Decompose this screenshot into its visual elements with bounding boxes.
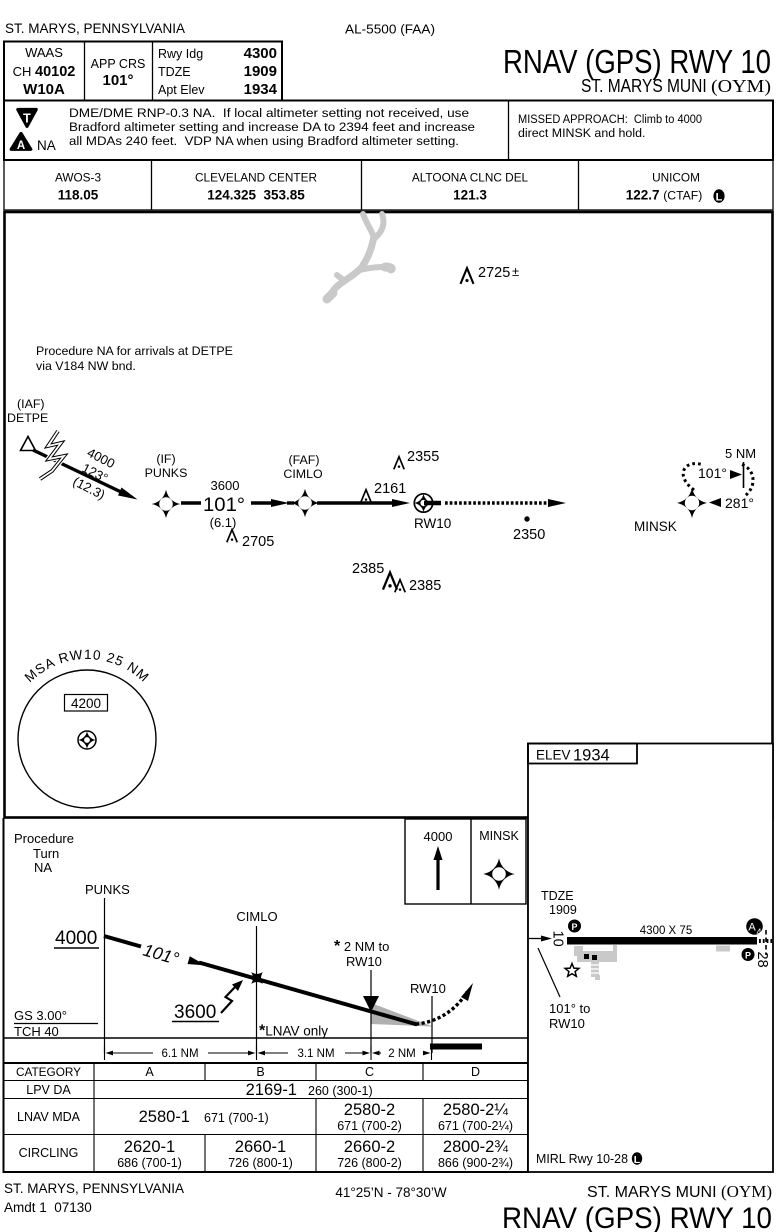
svg-text:CATEGORY: CATEGORY — [16, 1065, 81, 1079]
svg-text:2800-2¾: 2800-2¾ — [443, 1138, 508, 1156]
svg-text:via V184 NW bnd.: via V184 NW bnd. — [36, 359, 136, 373]
svg-text:DME/DME RNP-0.3 NA. If local: DME/DME RNP-0.3 NA. If local altimeter s… — [69, 106, 469, 120]
svg-text:Turn: Turn — [33, 846, 59, 861]
svg-text:D: D — [471, 1065, 480, 1079]
svg-text:AL-5500 (FAA): AL-5500 (FAA) — [345, 23, 435, 37]
svg-text:ELEV: ELEV — [536, 748, 571, 763]
svg-text:MIRL Rwy 10-28: MIRL Rwy 10-28 — [536, 1151, 628, 1166]
svg-text:T: T — [23, 112, 31, 126]
svg-text:RNAV (GPS) RWY 10: RNAV (GPS) RWY 10 — [502, 1202, 772, 1232]
svg-text:(6.1): (6.1) — [210, 515, 237, 530]
svg-text:4200: 4200 — [71, 696, 101, 711]
svg-text:4000: 4000 — [55, 928, 97, 949]
svg-text:±: ± — [512, 264, 519, 279]
svg-text:PUNKS: PUNKS — [145, 466, 188, 480]
svg-text:(FAF): (FAF) — [289, 453, 320, 467]
svg-text:RW10: RW10 — [549, 1016, 585, 1031]
svg-text:726 (800-2): 726 (800-2) — [337, 1156, 402, 1170]
svg-text:(IF): (IF) — [156, 452, 175, 466]
svg-text:671 (700-2): 671 (700-2) — [337, 1119, 402, 1133]
svg-text:NA: NA — [34, 860, 52, 875]
svg-text:2620-1: 2620-1 — [124, 1138, 175, 1156]
svg-text:ALTOONA CLNC DEL: ALTOONA CLNC DEL — [412, 171, 529, 185]
svg-text:W10A: W10A — [23, 81, 65, 98]
svg-text:MINSK: MINSK — [479, 829, 519, 843]
svg-text:4: 4 — [756, 927, 761, 937]
svg-text:41°25’N - 78°30’W: 41°25’N - 78°30’W — [335, 1185, 447, 1200]
svg-text:260 (300-1): 260 (300-1) — [308, 1084, 373, 1098]
svg-text:LNAV MDA: LNAV MDA — [17, 1110, 81, 1124]
svg-text:5 NM: 5 NM — [725, 446, 756, 461]
svg-text:122.7 (CTAF): 122.7 (CTAF) — [626, 188, 703, 203]
svg-text:APP CRS: APP CRS — [91, 57, 146, 71]
svg-text:direct MINSK and hold.: direct MINSK and hold. — [518, 126, 645, 140]
svg-text:2660-1: 2660-1 — [235, 1138, 286, 1156]
svg-text:P: P — [571, 922, 577, 932]
svg-text:DETPE: DETPE — [7, 411, 48, 425]
svg-text:121.3: 121.3 — [453, 188, 487, 203]
svg-text:101°: 101° — [698, 465, 727, 481]
svg-text:RW10: RW10 — [410, 981, 446, 996]
svg-text:101°: 101° — [102, 72, 133, 89]
svg-text:B: B — [256, 1065, 264, 1079]
svg-text:2580-2: 2580-2 — [344, 1101, 395, 1119]
svg-text:101°: 101° — [141, 940, 181, 969]
svg-text:TDZE: TDZE — [158, 65, 191, 79]
svg-text:3600: 3600 — [174, 1002, 216, 1023]
svg-text:CIMLO: CIMLO — [283, 467, 323, 481]
svg-text:L: L — [634, 1154, 641, 1166]
svg-text:101° to: 101° to — [549, 1001, 590, 1016]
svg-text:3600: 3600 — [211, 478, 240, 493]
svg-text:2161: 2161 — [374, 481, 406, 497]
svg-text:* 2 NM to: * 2 NM to — [334, 938, 389, 955]
svg-text:Rwy Idg: Rwy Idg — [158, 47, 203, 61]
svg-text:4300 X 75: 4300 X 75 — [640, 925, 692, 937]
svg-text:2705: 2705 — [242, 534, 274, 550]
svg-text:AWOS-3: AWOS-3 — [55, 171, 102, 185]
svg-text:10: 10 — [550, 931, 566, 947]
svg-text:2580-2¼: 2580-2¼ — [443, 1101, 508, 1119]
svg-text:ST. MARYS MUNI (OYM): ST. MARYS MUNI (OYM) — [581, 76, 771, 97]
svg-text:CIMLO: CIMLO — [236, 909, 277, 924]
svg-text:2660-2: 2660-2 — [344, 1138, 395, 1156]
svg-text:671 (700-1): 671 (700-1) — [204, 1111, 269, 1125]
svg-text:TCH 40: TCH 40 — [14, 1024, 59, 1039]
svg-text:ST. MARYS, PENNSYLVANIA: ST. MARYS, PENNSYLVANIA — [5, 21, 185, 36]
svg-text:4000: 4000 — [424, 829, 453, 844]
svg-text:2 NM: 2 NM — [388, 1048, 415, 1060]
svg-text:6.1 NM: 6.1 NM — [161, 1048, 198, 1060]
svg-text:1934: 1934 — [573, 747, 610, 765]
svg-text:MISSED APPROACH: Climb to 400: MISSED APPROACH: Climb to 4000 — [518, 112, 702, 126]
svg-text:Bradford altimeter setting and: Bradford altimeter setting and increase … — [69, 120, 475, 134]
svg-text:2725: 2725 — [478, 265, 510, 281]
svg-text:ST. MARYS MUNI (OYM): ST. MARYS MUNI (OYM) — [587, 1182, 772, 1201]
svg-text:RNAV (GPS) RWY 10: RNAV (GPS) RWY 10 — [503, 43, 771, 80]
svg-text:124.325 353.85: 124.325 353.85 — [207, 188, 305, 203]
svg-text:101°: 101° — [203, 495, 245, 516]
svg-text:CIRCLING: CIRCLING — [19, 1146, 79, 1160]
svg-text:A: A — [145, 1065, 154, 1079]
svg-text:ST. MARYS, PENNSYLVANIA: ST. MARYS, PENNSYLVANIA — [4, 1181, 184, 1196]
svg-text:Procedure: Procedure — [14, 831, 74, 846]
svg-text:Procedure NA for arrivals at D: Procedure NA for arrivals at DETPE — [36, 344, 233, 358]
svg-text:118.05: 118.05 — [58, 188, 99, 203]
svg-text:2355: 2355 — [407, 449, 439, 465]
svg-text:CLEVELAND CENTER: CLEVELAND CENTER — [195, 171, 317, 185]
svg-text:3.1 NM: 3.1 NM — [297, 1048, 334, 1060]
svg-text:WAAS: WAAS — [25, 45, 63, 60]
svg-text:2580-1: 2580-1 — [139, 1108, 190, 1126]
svg-text:RW10: RW10 — [346, 954, 382, 969]
svg-text:C: C — [365, 1065, 374, 1079]
svg-text:726 (800-1): 726 (800-1) — [228, 1156, 293, 1170]
svg-text:L: L — [716, 192, 723, 204]
svg-text:1934: 1934 — [244, 81, 278, 98]
svg-text:Amdt 1 07130: Amdt 1 07130 — [4, 1200, 92, 1215]
svg-text:281°: 281° — [725, 495, 754, 511]
svg-text:(IAF): (IAF) — [17, 397, 45, 411]
svg-text:671 (700-2¼): 671 (700-2¼) — [438, 1119, 513, 1133]
svg-text:PUNKS: PUNKS — [85, 882, 130, 897]
svg-text:LPV DA: LPV DA — [26, 1083, 71, 1097]
svg-text:2350: 2350 — [513, 527, 545, 543]
svg-text:*LNAV only: *LNAV only — [259, 1023, 328, 1040]
svg-text:1909: 1909 — [244, 63, 277, 80]
svg-text:NA: NA — [37, 138, 56, 153]
svg-text:866 (900-2¾): 866 (900-2¾) — [438, 1156, 513, 1170]
svg-text:2169-1: 2169-1 — [246, 1081, 297, 1099]
svg-text:MSA RW10 25 NM: MSA RW10 25 NM — [22, 647, 153, 685]
svg-text:P: P — [745, 951, 751, 961]
svg-text:GS 3.00°: GS 3.00° — [14, 1008, 67, 1023]
svg-text:CH 40102: CH 40102 — [13, 64, 76, 80]
svg-text:Apt Elev: Apt Elev — [158, 83, 205, 97]
svg-text:all MDAs 240 feet. VDP NA whe: all MDAs 240 feet. VDP NA when using Bra… — [69, 134, 459, 148]
svg-text:UNICOM: UNICOM — [652, 171, 700, 185]
svg-text:TDZE: TDZE — [541, 889, 574, 903]
svg-text:4300: 4300 — [244, 45, 277, 62]
svg-text:686 (700-1): 686 (700-1) — [117, 1156, 182, 1170]
svg-text:1909: 1909 — [549, 903, 577, 917]
svg-text:A: A — [17, 140, 25, 152]
svg-text:A: A — [748, 922, 756, 934]
svg-text:2385: 2385 — [352, 561, 384, 577]
svg-text:RW10: RW10 — [414, 516, 451, 531]
svg-text:MINSK: MINSK — [634, 519, 677, 534]
svg-text:2385: 2385 — [409, 578, 441, 594]
svg-text:28: 28 — [754, 952, 770, 968]
